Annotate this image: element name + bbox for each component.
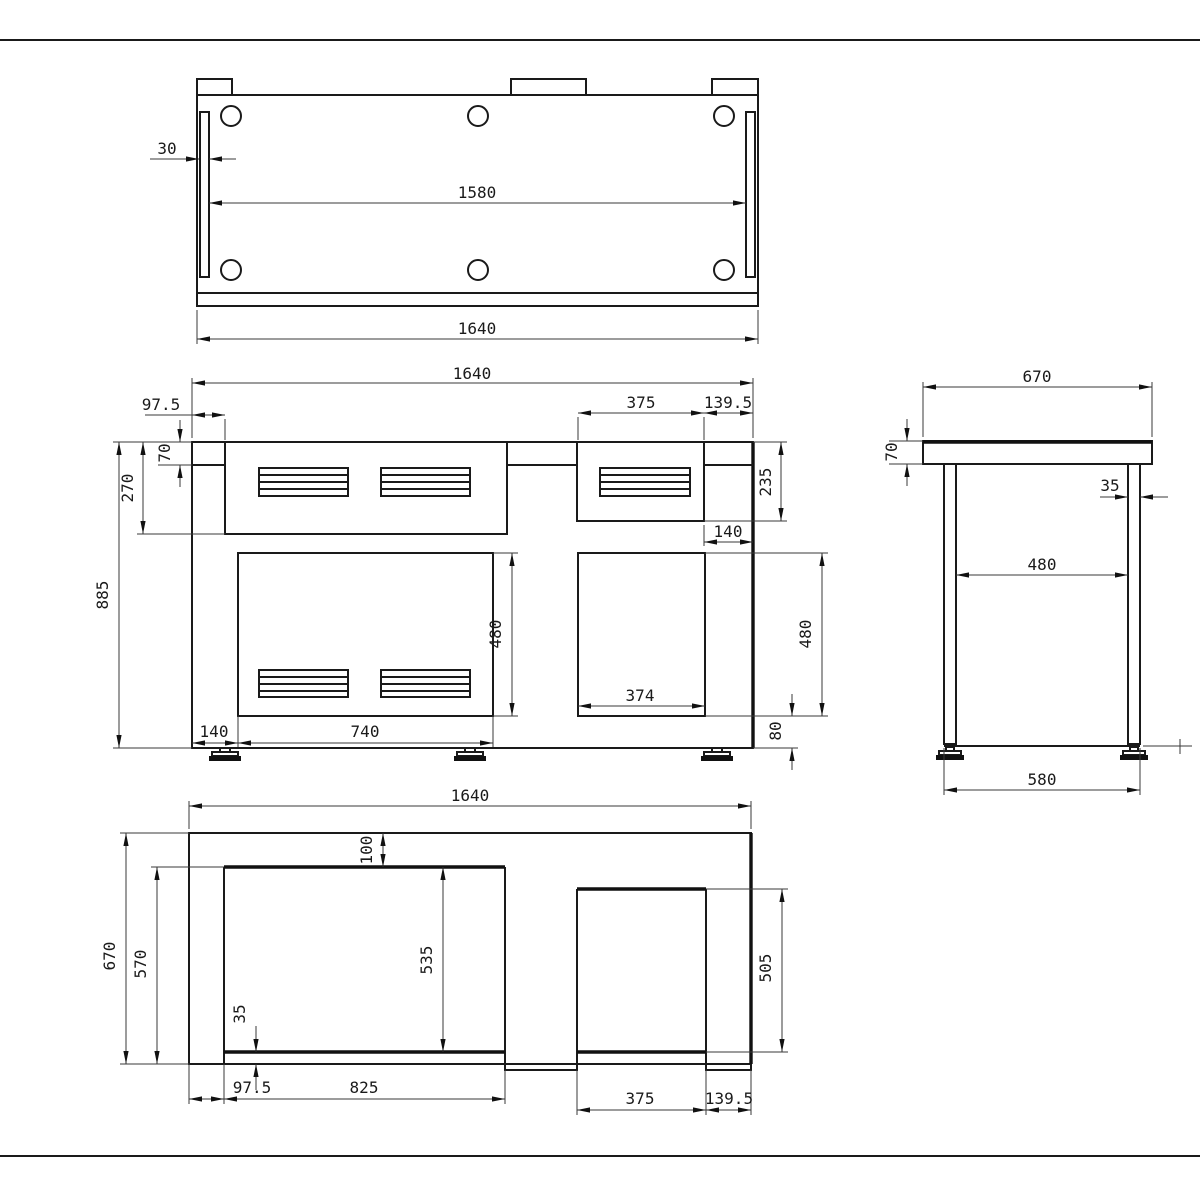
dim-top-hole-span: 1580 <box>458 183 497 202</box>
dim-side-leg-inner-span: 480 <box>1028 555 1057 574</box>
dim-front-right-panel-height: 480 <box>796 620 815 649</box>
dim-front-mid-panel-height: 480 <box>486 620 505 649</box>
front-view-outline <box>192 442 753 748</box>
dim-bottom-left-cutout-width: 825 <box>350 1078 379 1097</box>
dim-bottom-right-cutout-width: 375 <box>626 1089 655 1108</box>
dim-bottom-left-cutout-height: 535 <box>417 946 436 975</box>
dim-bottom-overall-depth: 670 <box>100 942 119 971</box>
dim-front-bottom-left-margin: 140 <box>200 722 229 741</box>
front-view-dimension-lines <box>113 378 828 770</box>
front-view: 1640 97.5 375 139.5 70 270 885 235 140 4… <box>93 364 828 770</box>
dim-bottom-inner-depth: 570 <box>131 950 150 979</box>
bottom-view-outline <box>189 833 751 1070</box>
dim-bottom-left-margin: 97.5 <box>233 1078 272 1097</box>
dim-bottom-overall-width: 1640 <box>451 786 490 805</box>
top-view: 30 1580 1640 <box>150 79 758 344</box>
bottom-view-dimension-lines <box>120 801 788 1115</box>
dim-bottom-bottom-rail-width: 35 <box>230 1004 249 1023</box>
dim-side-top-thickness: 70 <box>882 442 901 461</box>
dim-front-top-thickness: 70 <box>155 443 174 462</box>
dim-front-upper-panel-height: 270 <box>118 474 137 503</box>
dim-side-depth: 670 <box>1023 367 1052 386</box>
dim-side-base-span: 580 <box>1028 770 1057 789</box>
dim-front-overall-height: 885 <box>93 581 112 610</box>
dim-top-overall-width: 1640 <box>458 319 497 338</box>
dim-side-leg-thickness: 35 <box>1100 476 1119 495</box>
side-view: 670 70 35 480 580 <box>882 367 1192 795</box>
dim-bottom-right-cutout-depth: 505 <box>756 954 775 983</box>
dim-bottom-top-rail-width: 100 <box>357 836 376 865</box>
dim-front-bottom-clearance: 80 <box>766 721 785 740</box>
dim-front-left-offset: 97.5 <box>142 395 181 414</box>
drawing-sheet: 30 1580 1640 <box>0 0 1200 1200</box>
front-view-vent-grilles <box>259 468 690 697</box>
side-view-dimension-lines <box>889 382 1192 795</box>
dim-top-groove-width: 30 <box>157 139 176 158</box>
dim-front-upper-right-panel-width: 375 <box>627 393 656 412</box>
front-view-feet <box>209 748 733 761</box>
side-view-feet <box>936 747 1148 760</box>
dim-front-upper-right-margin: 139.5 <box>704 393 752 412</box>
dim-front-overall-width: 1640 <box>453 364 492 383</box>
bottom-view: 1640 670 570 100 535 35 97.5 825 375 139… <box>100 786 788 1115</box>
technical-drawing: 30 1580 1640 <box>0 0 1200 1200</box>
dim-front-right-gap: 140 <box>714 522 743 541</box>
sheet-border-lines <box>0 40 1200 1156</box>
dim-front-upper-right-panel-height: 235 <box>756 468 775 497</box>
dim-bottom-right-margin: 139.5 <box>705 1089 753 1108</box>
dim-front-lower-right-panel-width: 374 <box>626 686 655 705</box>
dim-front-lower-left-panel-width: 740 <box>351 722 380 741</box>
top-view-dimension-lines <box>150 159 758 344</box>
